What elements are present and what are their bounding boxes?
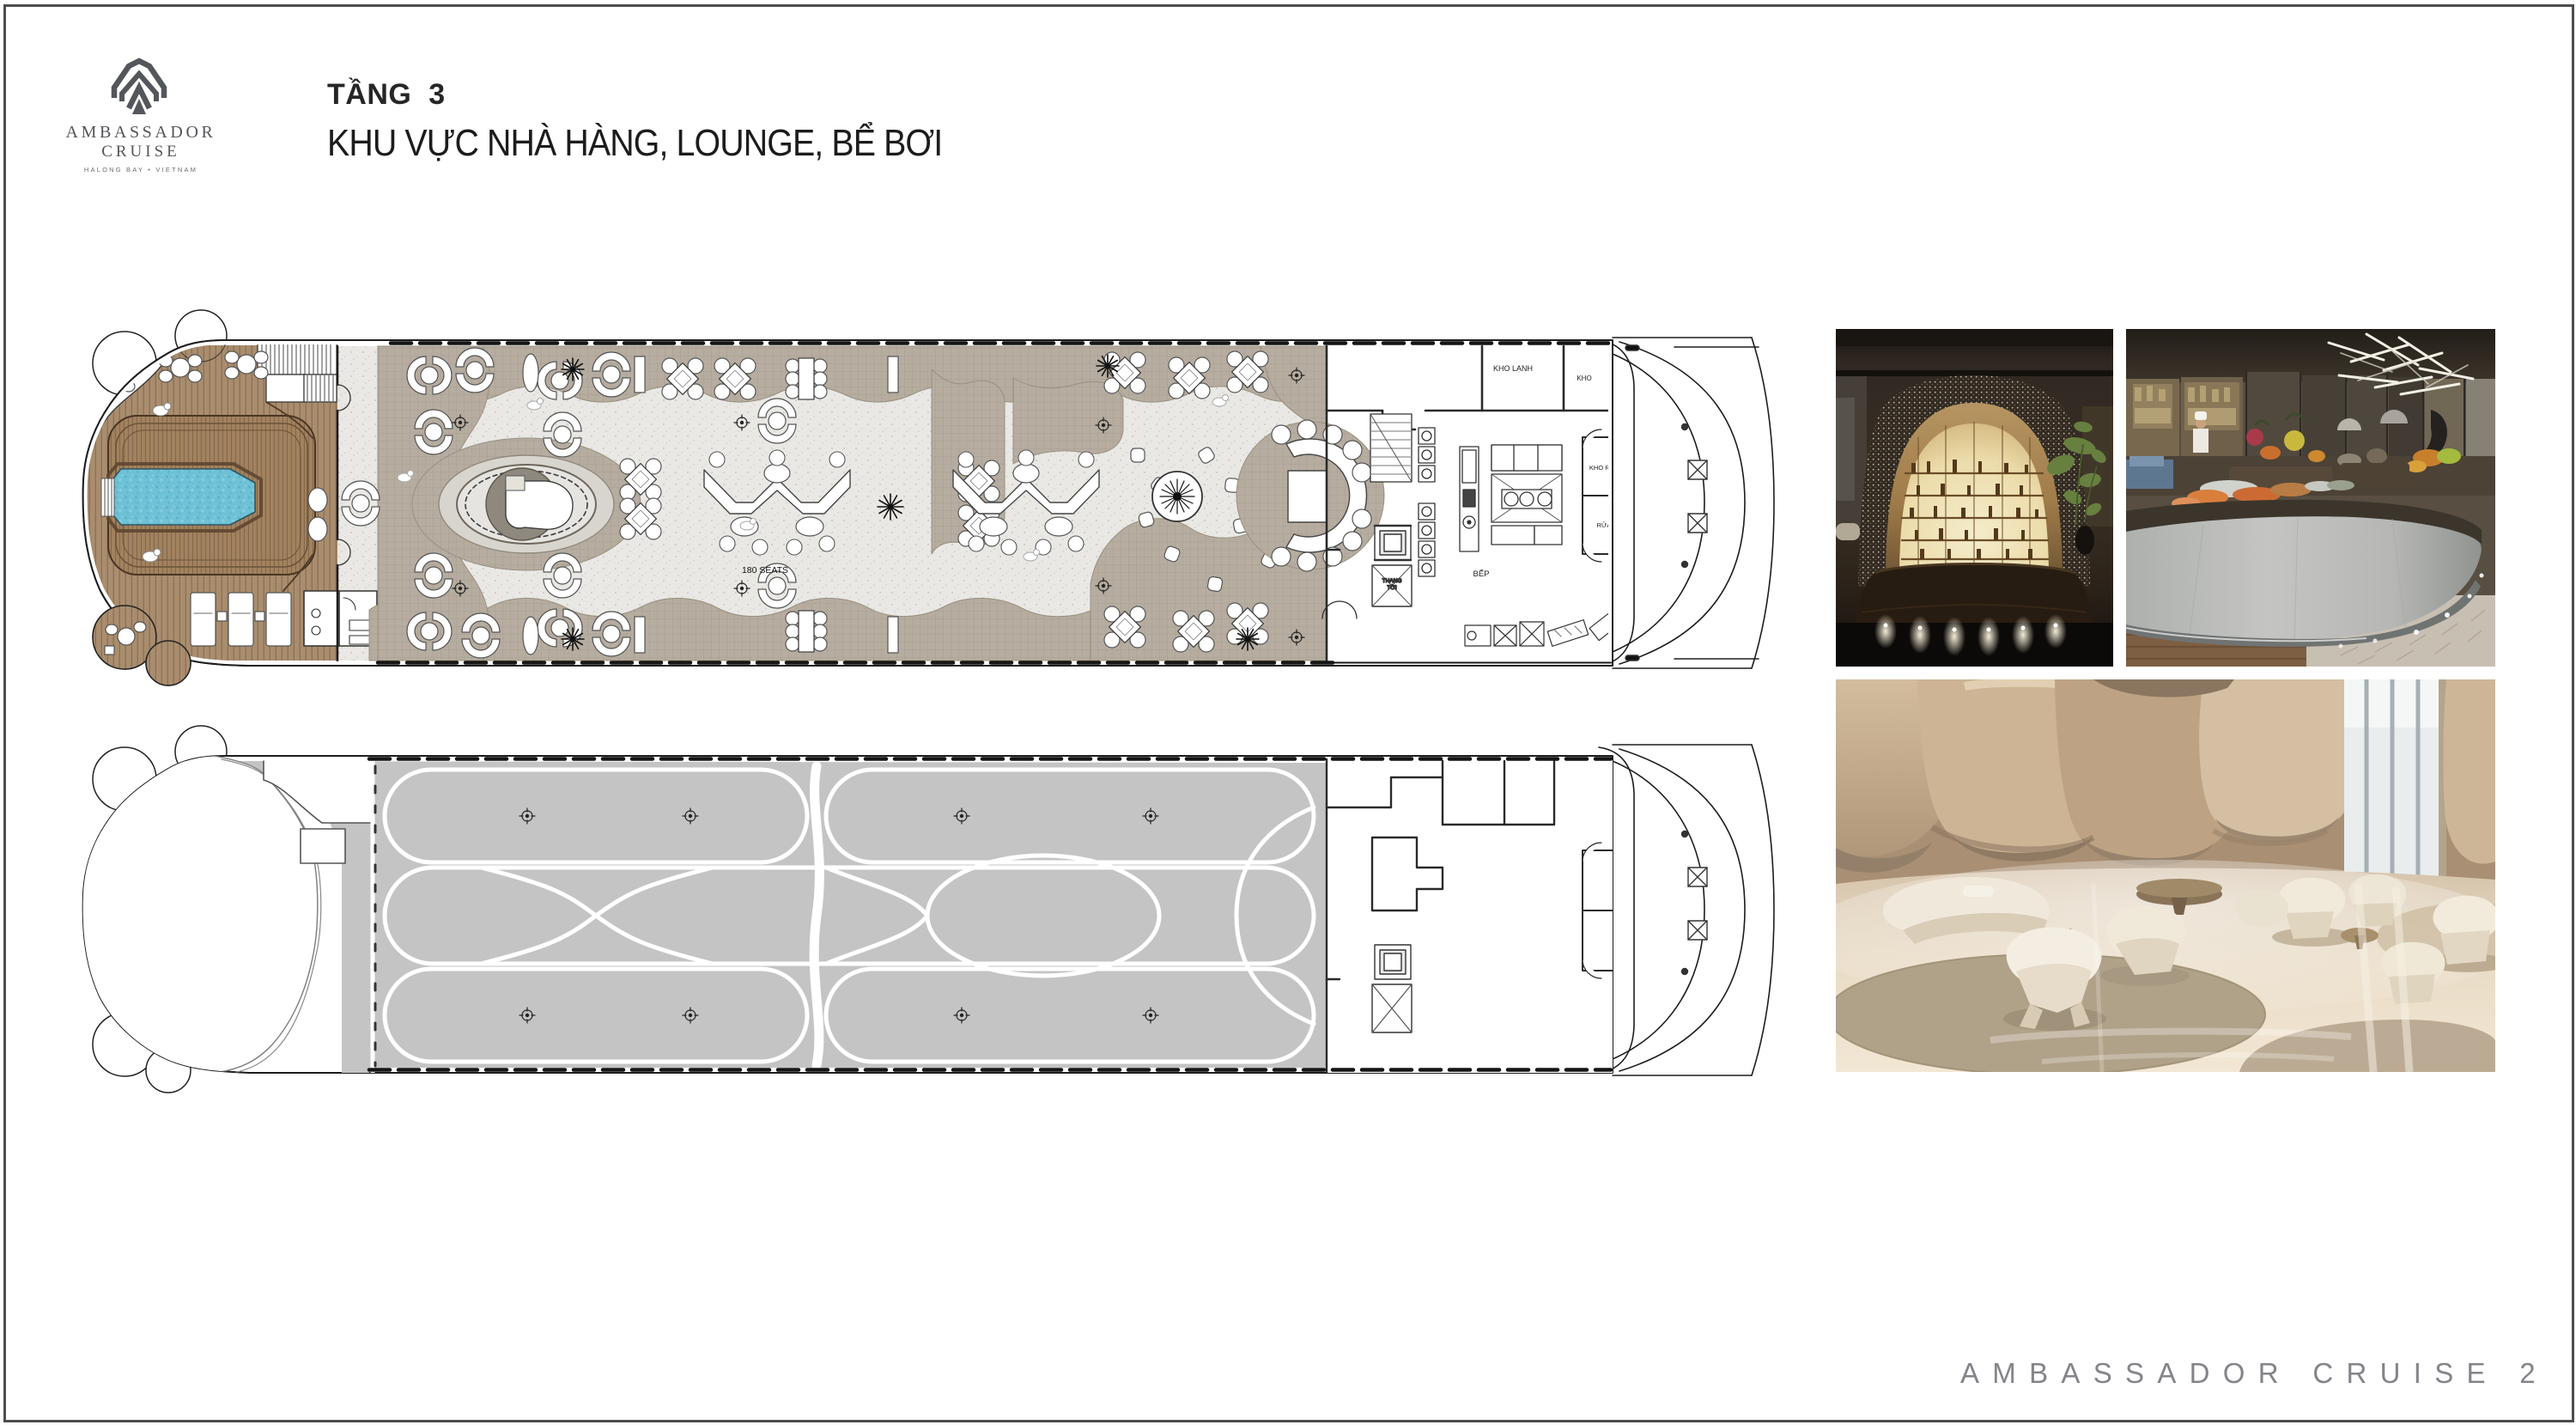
svg-text:KHO LẠNH: KHO LẠNH: [1493, 364, 1533, 373]
svg-text:KHO RÁC: KHO RÁC: [1589, 464, 1619, 472]
svg-text:TỜI: TỜI: [1387, 583, 1397, 591]
svg-text:THANG: THANG: [1382, 578, 1402, 584]
svg-text:KHO: KHO: [1577, 375, 1591, 382]
svg-text:180 SEATS: 180 SEATS: [742, 565, 788, 575]
svg-text:BẾP: BẾP: [1473, 569, 1489, 579]
